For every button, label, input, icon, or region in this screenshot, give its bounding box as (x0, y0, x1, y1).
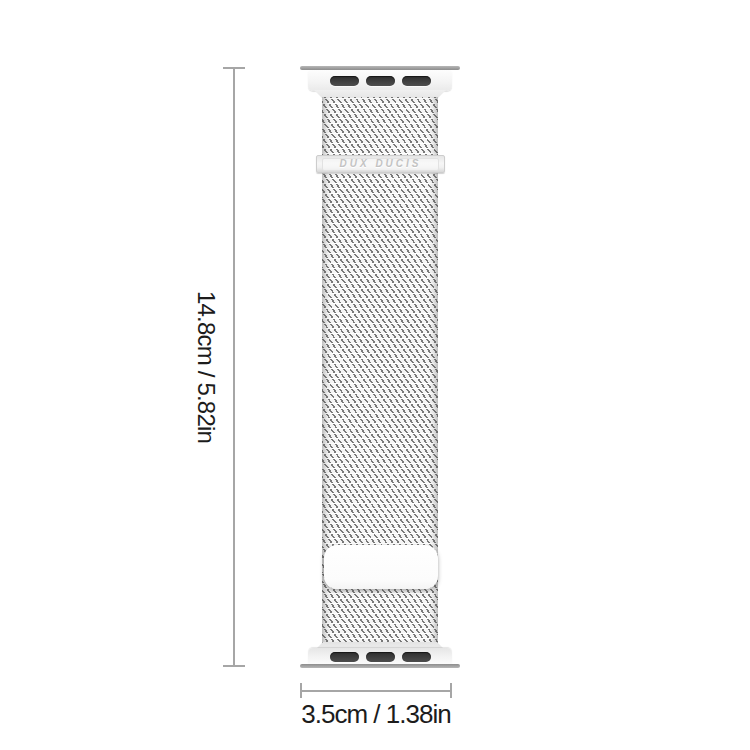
bottom-lug-bar (300, 664, 460, 668)
adapter-slot (402, 76, 431, 86)
adapter-slot (402, 652, 431, 662)
brand-clasp-slider: DUX DUCIS (316, 155, 445, 173)
height-dimension-label-box: 14.8cm / 5.82in (106, 267, 306, 467)
brand-logo-text: DUX DUCIS (339, 159, 421, 169)
product-image: 14.8cm / 5.82in 3.5cm / 1.38in DUX DUCIS (0, 0, 750, 750)
adapter-slot (330, 76, 359, 86)
magnet-plate (324, 545, 438, 589)
clasp-inner-panel: DUX DUCIS (322, 158, 439, 171)
adapter-slot (366, 76, 395, 86)
height-dimension-label: 14.8cm / 5.82in (192, 291, 220, 443)
top-adapter (308, 70, 452, 91)
height-dimension-tick-bottom (223, 665, 245, 667)
width-dimension-line (301, 690, 451, 692)
adapter-slot (366, 652, 395, 662)
width-dimension-tick-right (450, 683, 452, 698)
width-dimension-label: 3.5cm / 1.38in (296, 699, 456, 730)
width-dimension-tick-left (300, 683, 302, 698)
height-dimension-tick-top (223, 67, 245, 69)
adapter-slot (330, 652, 359, 662)
